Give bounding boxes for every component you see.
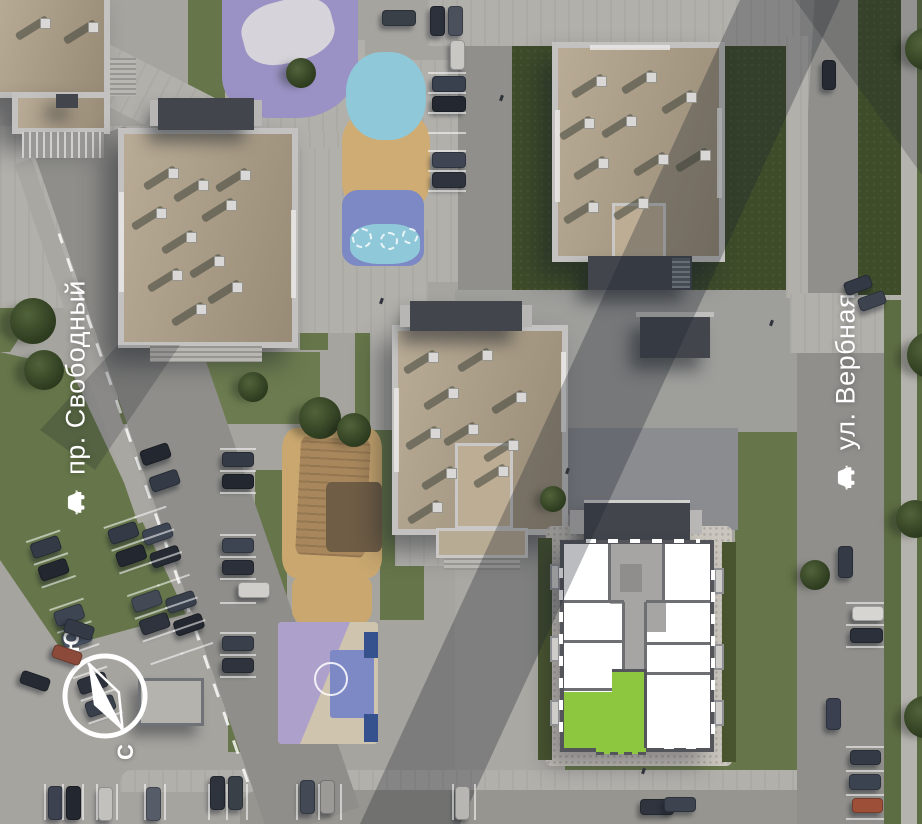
canopy-rail (254, 100, 262, 126)
parked-car (238, 582, 270, 598)
skylight-strip (590, 45, 670, 50)
parking-stripe (164, 784, 166, 820)
parked-car (432, 96, 466, 112)
skylight-strip (717, 108, 722, 198)
roof-vent (240, 170, 251, 181)
plan-wall (608, 544, 611, 600)
parked-car (850, 750, 881, 765)
roof-vent (700, 150, 711, 161)
blue-area-top (346, 52, 426, 140)
parking-stripe (220, 556, 256, 558)
building-top-right-vestibule (640, 316, 710, 358)
parked-car (450, 40, 465, 70)
parking-stripe (220, 676, 256, 678)
skylight-strip (561, 352, 566, 432)
plan-wall (646, 642, 710, 645)
roof-vent (516, 392, 527, 403)
roof-vent (584, 118, 595, 129)
floorplan-overlay[interactable] (560, 540, 714, 752)
roof-vent (156, 208, 167, 219)
canopy-wing (690, 510, 702, 534)
building-center-entrance-canopy (410, 301, 522, 331)
parking-stripe (428, 92, 466, 94)
steps (444, 558, 520, 570)
roof-vent (428, 352, 439, 363)
parked-car (826, 698, 841, 730)
playground-sand-blue (342, 52, 432, 267)
parking-stripe (846, 602, 884, 604)
parked-car (222, 474, 254, 489)
verge-verbnaya-top (858, 0, 902, 295)
roof-vent (432, 502, 443, 513)
parking-stripe (144, 784, 146, 820)
vestibule-edge (636, 312, 714, 317)
plan-balcony (714, 568, 724, 594)
roof-vent (638, 198, 649, 209)
parking-stripe (82, 784, 84, 820)
parked-car (98, 787, 113, 821)
plan-wall (564, 600, 624, 603)
site-plan: Ю С пр. Свободный ул. Вербная (0, 0, 922, 824)
steps (110, 58, 136, 96)
parked-car (210, 776, 225, 810)
wood-structure (326, 482, 382, 552)
roof-vent (172, 270, 183, 281)
compass-north-label: С (113, 744, 139, 760)
parked-car (664, 797, 696, 812)
stair-hatch (672, 258, 690, 288)
roof-vent (508, 440, 519, 451)
parking-stripe (428, 112, 466, 114)
plan-stairs (620, 564, 642, 592)
parking-stripe (220, 534, 256, 536)
parking-stripe (220, 470, 256, 472)
canopy-rail (400, 305, 410, 327)
roof-vent (482, 350, 493, 361)
tree (286, 58, 316, 88)
playground-wooden (282, 420, 386, 628)
plan-wall (646, 600, 710, 603)
street-name: ул. Вербная (831, 293, 862, 450)
parking-stripe (846, 818, 884, 820)
tree (337, 413, 371, 447)
parked-car (222, 658, 254, 673)
sports-court (278, 622, 382, 748)
plan-windows (652, 745, 706, 749)
roof-vent (168, 168, 179, 179)
parking-stripe (846, 746, 884, 748)
tree (238, 372, 268, 402)
parked-car (852, 798, 883, 813)
parked-car (19, 669, 52, 692)
roof-vent (598, 158, 609, 169)
parked-car (822, 60, 836, 90)
parking-stripe (220, 578, 256, 580)
roof-vent (430, 428, 441, 439)
parked-car (850, 628, 883, 643)
parking-stripe (318, 784, 320, 820)
parking-stripe (220, 448, 256, 450)
roof-vent (588, 202, 599, 213)
parking-stripe (340, 784, 342, 820)
parked-car (432, 76, 466, 92)
tree (540, 486, 566, 512)
building-left[interactable] (118, 128, 298, 348)
roof-vent (686, 92, 697, 103)
plan-balcony (714, 700, 724, 726)
sand-tongue (292, 570, 372, 628)
parked-car (432, 152, 466, 168)
roof-vent (40, 18, 51, 29)
skylight-strip (555, 110, 560, 202)
parking-stripe (220, 632, 256, 634)
roof-vent (214, 256, 225, 267)
parking-stripe (846, 794, 884, 796)
play-ring (352, 228, 372, 248)
roof-vent (226, 200, 237, 211)
canopy-rail (150, 100, 158, 126)
court-arc (314, 662, 348, 696)
building-top-left[interactable] (0, 0, 110, 98)
parking-stripe (44, 784, 46, 820)
building-left-entrance-canopy (158, 98, 254, 130)
parking-stripe (220, 654, 256, 656)
plan-windows (559, 556, 563, 738)
parked-car (382, 10, 416, 26)
parked-car (222, 636, 254, 651)
roof-vent (186, 232, 197, 243)
roof-vent (88, 22, 99, 33)
parked-car (448, 6, 463, 36)
parking-stripe (474, 784, 476, 820)
verge-verbnaya-bottom (884, 300, 902, 824)
lawn-bottom-right (735, 430, 805, 790)
plan-wall (662, 544, 665, 600)
parking-stripe (846, 624, 884, 626)
roof-vent (646, 72, 657, 83)
plan-wall (646, 672, 710, 675)
plan-core-jog (646, 602, 666, 632)
plaza-band-top (428, 0, 800, 46)
parked-car (849, 774, 881, 790)
parking-stripe (220, 492, 256, 494)
parking-stripe (62, 784, 64, 820)
steps (150, 346, 262, 362)
plan-wall (612, 669, 646, 672)
hedge-strip (722, 542, 736, 762)
building-center-vestibule (436, 528, 528, 558)
street-label-svobodny: пр. Свободный (61, 280, 92, 516)
parked-car (838, 546, 853, 578)
parking-stripe (428, 72, 466, 74)
selected-apartment[interactable] (564, 692, 646, 748)
parking-stripe (96, 784, 98, 820)
parked-car (222, 538, 254, 553)
tree (800, 560, 830, 590)
parking-stripe (150, 652, 183, 665)
parking-stripe (220, 602, 256, 604)
parked-car (66, 786, 81, 820)
plan-balcony-rail-dashed (596, 752, 646, 755)
parking-stripe (296, 784, 298, 820)
parking-stripe (428, 150, 466, 152)
canopy-wing (570, 510, 584, 534)
parked-car (430, 6, 445, 36)
parked-car (228, 776, 243, 810)
roof-vent (596, 76, 607, 87)
roof-vent (468, 424, 479, 435)
tree (10, 298, 56, 344)
skylight-strip (394, 388, 399, 472)
tree (24, 350, 64, 390)
parking-stripe (246, 784, 248, 820)
roof-vent (446, 468, 457, 479)
skylight-strip (119, 192, 124, 292)
car-icon (65, 489, 87, 516)
roof-vent (448, 388, 459, 399)
roof-vent (626, 116, 637, 127)
parking-stripe (428, 170, 466, 172)
roof-vent (658, 154, 669, 165)
parked-car (455, 786, 470, 820)
sidewalk-verbnaya-top (786, 36, 808, 298)
play-ring (380, 232, 398, 250)
skylight-strip (291, 210, 296, 298)
parked-car (852, 606, 884, 621)
parking-stripe (428, 132, 466, 134)
parking-stripe (428, 190, 466, 192)
parking-stripe (116, 784, 118, 820)
parking-stripe (208, 784, 210, 820)
street-label-verbnaya: ул. Вербная (831, 293, 862, 491)
plan-balcony (714, 644, 724, 670)
playground-light-patch (236, 0, 341, 73)
parking-stripe (226, 784, 228, 820)
roof-vent (198, 180, 209, 191)
parked-car (320, 780, 335, 814)
plan-windows (711, 558, 715, 738)
court-mat (364, 632, 378, 658)
parked-car (222, 560, 254, 575)
roof-vent (498, 466, 509, 477)
parked-car (300, 780, 315, 814)
parking-stripe (452, 784, 454, 820)
court-mat (364, 714, 378, 742)
pergola-canopy (22, 132, 104, 158)
parked-car (146, 787, 161, 821)
parked-car (48, 786, 63, 820)
plan-windows (574, 539, 700, 543)
parked-car (222, 452, 254, 467)
plan-wall (564, 640, 624, 643)
car-icon (835, 464, 857, 491)
roof-vent (232, 282, 243, 293)
street-name: пр. Свободный (61, 280, 92, 475)
parked-car (432, 172, 466, 188)
parking-stripe (846, 646, 884, 648)
canopy-rail (522, 305, 532, 327)
entrance-block (56, 94, 78, 108)
plan-wall (644, 670, 647, 748)
parking-stripe (846, 770, 884, 772)
selected-apartment-notch[interactable] (612, 672, 646, 692)
play-ring (402, 228, 418, 244)
roof-vent (196, 304, 207, 315)
